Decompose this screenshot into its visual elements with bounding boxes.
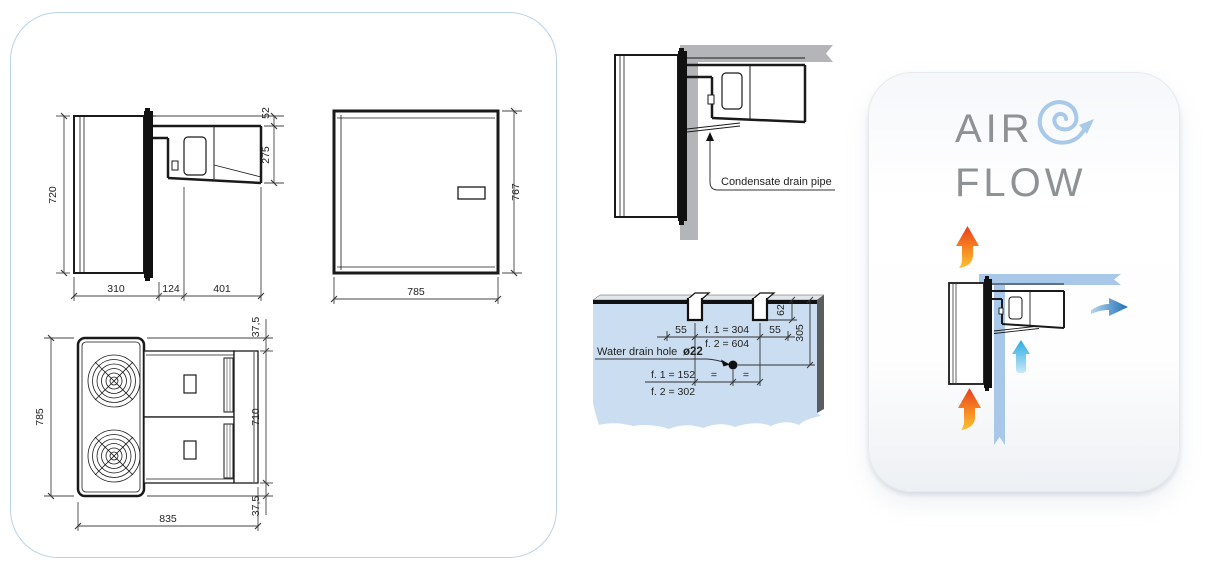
dim-label-depth-wall: 124	[162, 283, 180, 295]
hot-air-arrow-top-icon	[956, 226, 979, 268]
dim-label-unit-height: 275	[260, 146, 272, 164]
dim-label-bottom-flange: 37,5	[250, 496, 262, 517]
dim-label-roof-offset: 52	[260, 107, 272, 119]
water-drain-diameter: ø22	[683, 346, 703, 358]
airflow-title-word2: FLOW	[955, 159, 1087, 207]
dim-label-height: 767	[510, 183, 522, 201]
water-drain-diagram: 55 f. 1 = 304 f. 2 = 604 55 62 305 Water…	[585, 285, 845, 450]
front-view-drawing: 785 767	[326, 96, 561, 311]
dimension-drawings-panel: 720 52 275 310 124 401 785 767	[10, 12, 557, 558]
dim-label-top-flange: 37,5	[250, 317, 262, 338]
dim-pitch-f2: f. 2 = 604	[705, 338, 749, 350]
dim-depth: 305	[794, 324, 806, 342]
dim-pitch-f1: f. 1 = 304	[705, 324, 749, 336]
dim-center-f1: f. 1 = 152	[651, 369, 695, 381]
dim-label-width: 785	[34, 408, 46, 426]
page: { "drawings": { "side_view": { "height":…	[0, 0, 1214, 577]
dim-label-body: 710	[250, 408, 262, 426]
equal-mark-left: =	[711, 369, 717, 381]
dim-center-f2: f. 2 = 302	[651, 386, 695, 398]
front-view-unit-outline	[334, 111, 498, 273]
equal-mark-right: =	[743, 369, 749, 381]
unit-outline	[949, 276, 1064, 391]
swirl-arrow-icon	[1022, 89, 1107, 164]
water-drain-label: Water drain hole	[597, 346, 677, 358]
dim-slot-width: 62	[775, 304, 787, 316]
airflow-panel: AIR FLOW	[868, 72, 1180, 492]
dim-label-width: 785	[407, 286, 425, 298]
dim-right-offset: 55	[769, 324, 781, 336]
water-drain-hole	[729, 361, 738, 370]
dim-left-offset: 55	[675, 324, 687, 336]
airflow-diagram	[899, 213, 1154, 458]
dim-label-depth-inside: 310	[107, 283, 125, 295]
cold-air-out-arrow-icon	[1091, 298, 1128, 316]
top-view-drawing: 785 37,5 710 37,5 835	[26, 306, 316, 554]
condensate-drain-diagram: Condensate drain pipe	[590, 25, 855, 240]
condensate-label: Condensate drain pipe	[721, 176, 832, 188]
cold-air-in-arrow-icon	[1012, 340, 1030, 373]
dim-label-length: 835	[159, 513, 177, 525]
dim-label-height: 720	[47, 186, 59, 204]
dim-label-depth-outside: 401	[213, 283, 231, 295]
wall-panel	[593, 295, 824, 429]
side-view-unit-outline	[74, 108, 261, 281]
side-view-drawing: 720 52 275 310 124 401	[26, 91, 311, 321]
hot-air-arrow-bottom-icon	[958, 388, 981, 430]
